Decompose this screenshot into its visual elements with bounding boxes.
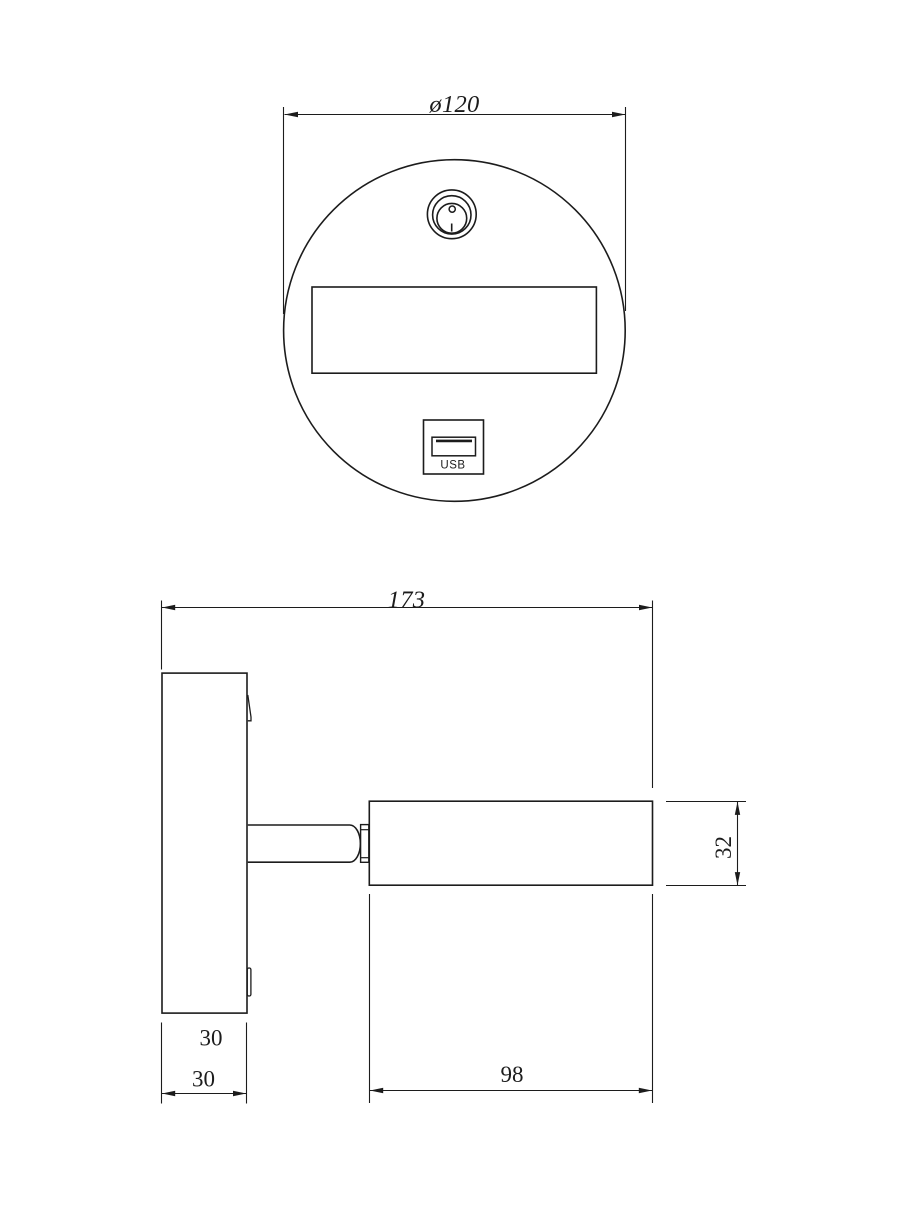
svg-text:USB: USB xyxy=(440,460,465,472)
svg-text:30: 30 xyxy=(192,1067,215,1092)
svg-text:173: 173 xyxy=(388,587,426,614)
svg-text:30: 30 xyxy=(200,1026,223,1051)
svg-text:98: 98 xyxy=(501,1062,524,1087)
svg-text:32: 32 xyxy=(711,836,736,859)
svg-text:ø120: ø120 xyxy=(428,91,479,118)
